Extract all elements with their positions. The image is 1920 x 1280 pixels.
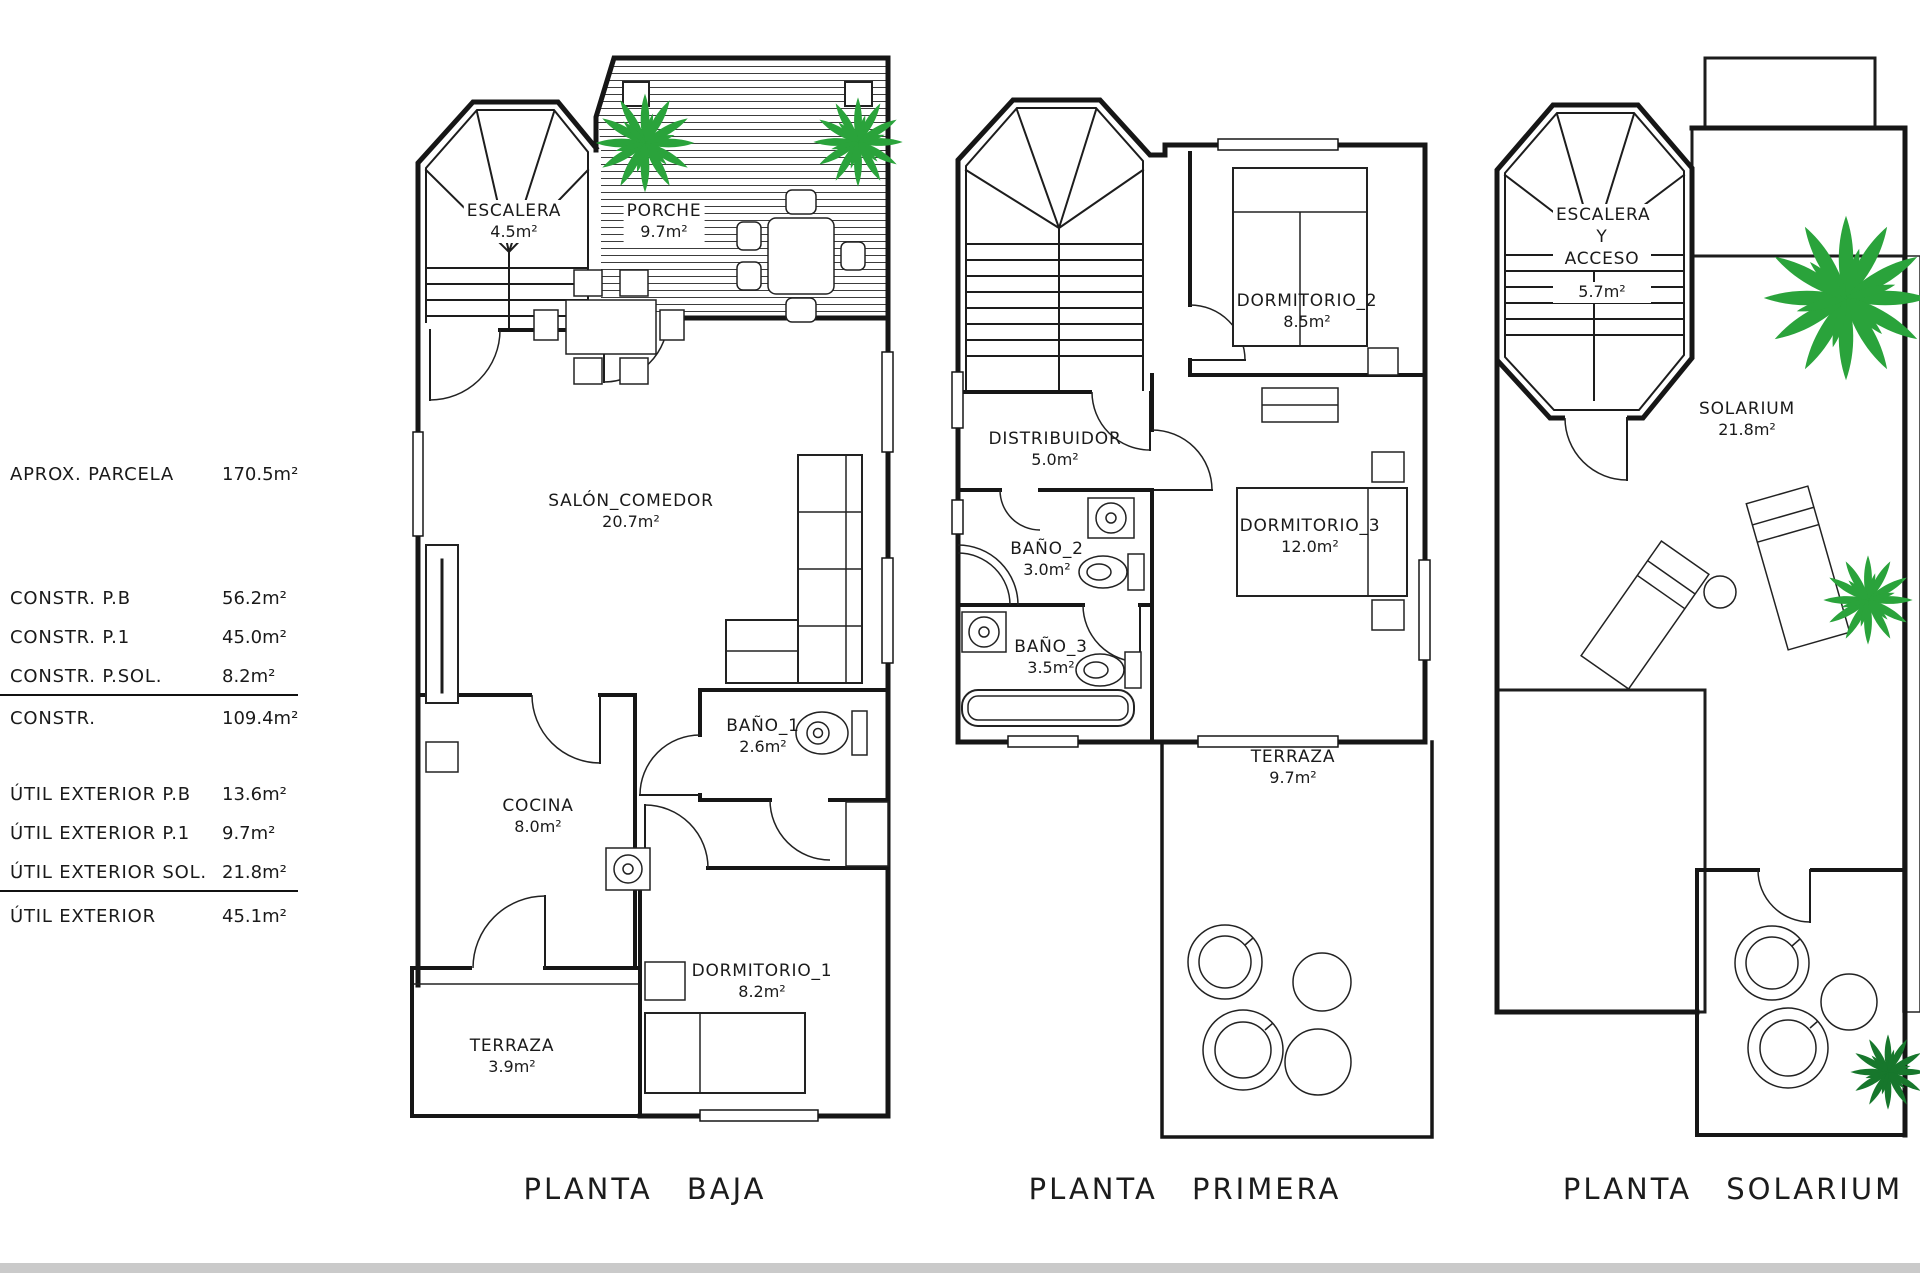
sink-icon (1088, 498, 1134, 538)
room-label-solarium: SOLARIUM 21.8m² (1699, 398, 1795, 441)
room-label-terraza-pb: TERRAZA 3.9m² (470, 1035, 555, 1078)
room-label-dormitorio-2: DORMITORIO_2 8.5m² (1237, 290, 1378, 333)
room-label-distribuidor: DISTRIBUIDOR 5.0m² (988, 428, 1121, 471)
room-label-escalera-acceso: ESCALERA Y ACCESO 5.7m² (1553, 204, 1651, 303)
sofa (726, 455, 862, 683)
room-label-bano-1: BAÑO_1 2.6m² (726, 715, 800, 758)
shower-icon (958, 545, 1018, 605)
palm-icon (1764, 216, 1920, 381)
round-table-icon (1821, 974, 1877, 1030)
bed (1233, 168, 1398, 375)
room-label-escalera: ESCALERA 4.5m² (464, 200, 564, 243)
round-chair-icon (1203, 1010, 1283, 1090)
room-label-cocina: COCINA 8.0m² (502, 795, 573, 838)
room-label-porche: PORCHE 9.7m² (624, 200, 705, 243)
toilet-icon (796, 711, 867, 755)
round-chair-icon (1748, 1008, 1828, 1088)
room-label-dormitorio-1: DORMITORIO_1 8.2m² (692, 960, 833, 1003)
round-chair-icon (1735, 926, 1809, 1000)
toilet-icon (1079, 554, 1144, 590)
plan-planta-primera (952, 100, 1432, 1137)
sun-lounger (1581, 541, 1709, 689)
window (882, 558, 893, 663)
round-table-icon (1704, 576, 1736, 608)
window (700, 1110, 818, 1121)
door-swing (430, 330, 500, 400)
plant-icon (1850, 1034, 1920, 1109)
shower-tray (846, 802, 888, 866)
room-label-salon-comedor: SALÓN_COMEDOR 20.7m² (548, 490, 714, 533)
room-label-bano-2: BAÑO_2 3.0m² (1010, 538, 1084, 581)
sink-icon (606, 848, 650, 890)
window (952, 500, 963, 534)
roof-tiles-hatch (1692, 128, 1905, 256)
window (1218, 139, 1338, 150)
wardrobe (1262, 388, 1338, 422)
window (1008, 736, 1078, 747)
round-chair-icon (1188, 925, 1262, 999)
floorplan-drawing (0, 0, 1920, 1280)
bathtub-icon (962, 690, 1134, 726)
room-label-terraza-p1: TERRAZA 9.7m² (1251, 746, 1336, 789)
room-label-dormitorio-3: DORMITORIO_3 12.0m² (1240, 515, 1381, 558)
sink-icon (962, 612, 1006, 652)
staircase (966, 108, 1143, 390)
window (413, 432, 423, 536)
roof-tiles-hatch (1497, 690, 1705, 1012)
room-label-bano-3: BAÑO_3 3.5m² (1014, 636, 1088, 679)
window (882, 352, 893, 452)
pergola-hatch (1705, 58, 1875, 128)
window (952, 372, 963, 428)
round-table-icon (1285, 1029, 1351, 1095)
sun-lounger (1746, 486, 1849, 650)
round-table-icon (1293, 953, 1351, 1011)
fireplace-unit (426, 545, 458, 772)
window (1419, 560, 1430, 660)
